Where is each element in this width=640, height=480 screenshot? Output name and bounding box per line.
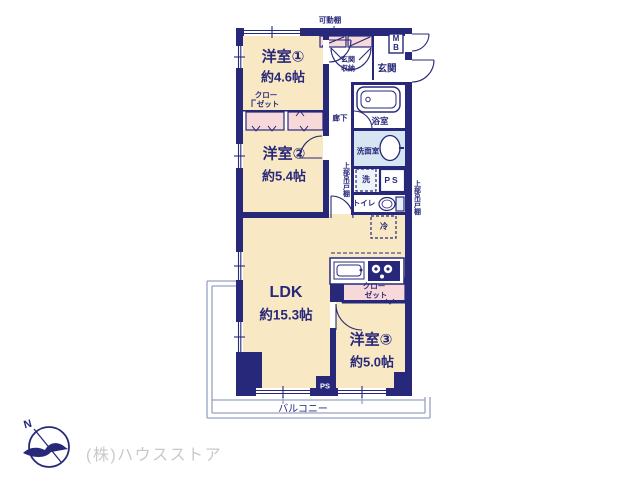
- washroom-label: 洗面室: [357, 147, 380, 155]
- balcony-label: バルコニー: [278, 405, 328, 415]
- room1-size-label: 約4.6帖: [261, 71, 305, 84]
- room2-name-label: 洋室②: [263, 147, 306, 162]
- stove-icon: [368, 261, 400, 281]
- upper-cabinet-label-left: 上部吊戸棚: [343, 162, 350, 197]
- room1-name-label: 洋室①: [262, 50, 305, 65]
- closet-room2: [288, 112, 323, 130]
- meter-box-label-m: M: [393, 35, 400, 43]
- closet12-label-line2: ゼット: [257, 100, 280, 108]
- hallway-label: 廊下: [333, 114, 348, 122]
- closet3-label-line2: ゼット: [365, 291, 388, 299]
- washer-label: 洗: [362, 176, 370, 184]
- ldk-size-label: 約15.3帖: [259, 308, 312, 322]
- floor-plan-image: 可動棚 洋室① 約4.6帖 クロー ゼット 玄関 収納 玄関 M B 廊下 浴室…: [0, 0, 640, 480]
- entrance-label: 玄関: [377, 64, 396, 74]
- room3-size-label: 約5.0帖: [350, 356, 394, 369]
- closet3-label-line1: クロー: [363, 282, 386, 290]
- pipe-space-bottom-label: PS: [320, 382, 330, 390]
- upper-cabinet-label-right: 上部吊戸棚: [414, 180, 421, 215]
- closet12-label-line1: クロー: [255, 91, 278, 99]
- entrance-storage-label-line1: 玄関: [341, 57, 355, 64]
- meter-box-label-b: B: [393, 44, 399, 52]
- kitchen-counter: [330, 253, 404, 284]
- toilet-icon: [379, 197, 404, 211]
- room3-name-label: 洋室③: [350, 333, 393, 348]
- refrigerator-label: 冷: [380, 223, 388, 231]
- movable-shelf-label: 可動棚: [319, 16, 342, 24]
- bathroom-label: 浴室: [371, 117, 388, 126]
- kitchen-sink-icon: [334, 262, 364, 279]
- closet-room1: [246, 112, 284, 130]
- compass-icon: [23, 427, 69, 467]
- ldk-name-label: LDK: [270, 285, 303, 301]
- bathtub-icon: [357, 87, 400, 112]
- pipe-space-label: PS: [384, 176, 399, 185]
- room2-size-label: 約5.4帖: [262, 170, 306, 183]
- toilet-label: トイレ: [353, 199, 376, 207]
- entrance-storage-label-line2: 収納: [341, 66, 355, 73]
- watermark-text: (株)ハウスストア: [86, 448, 222, 464]
